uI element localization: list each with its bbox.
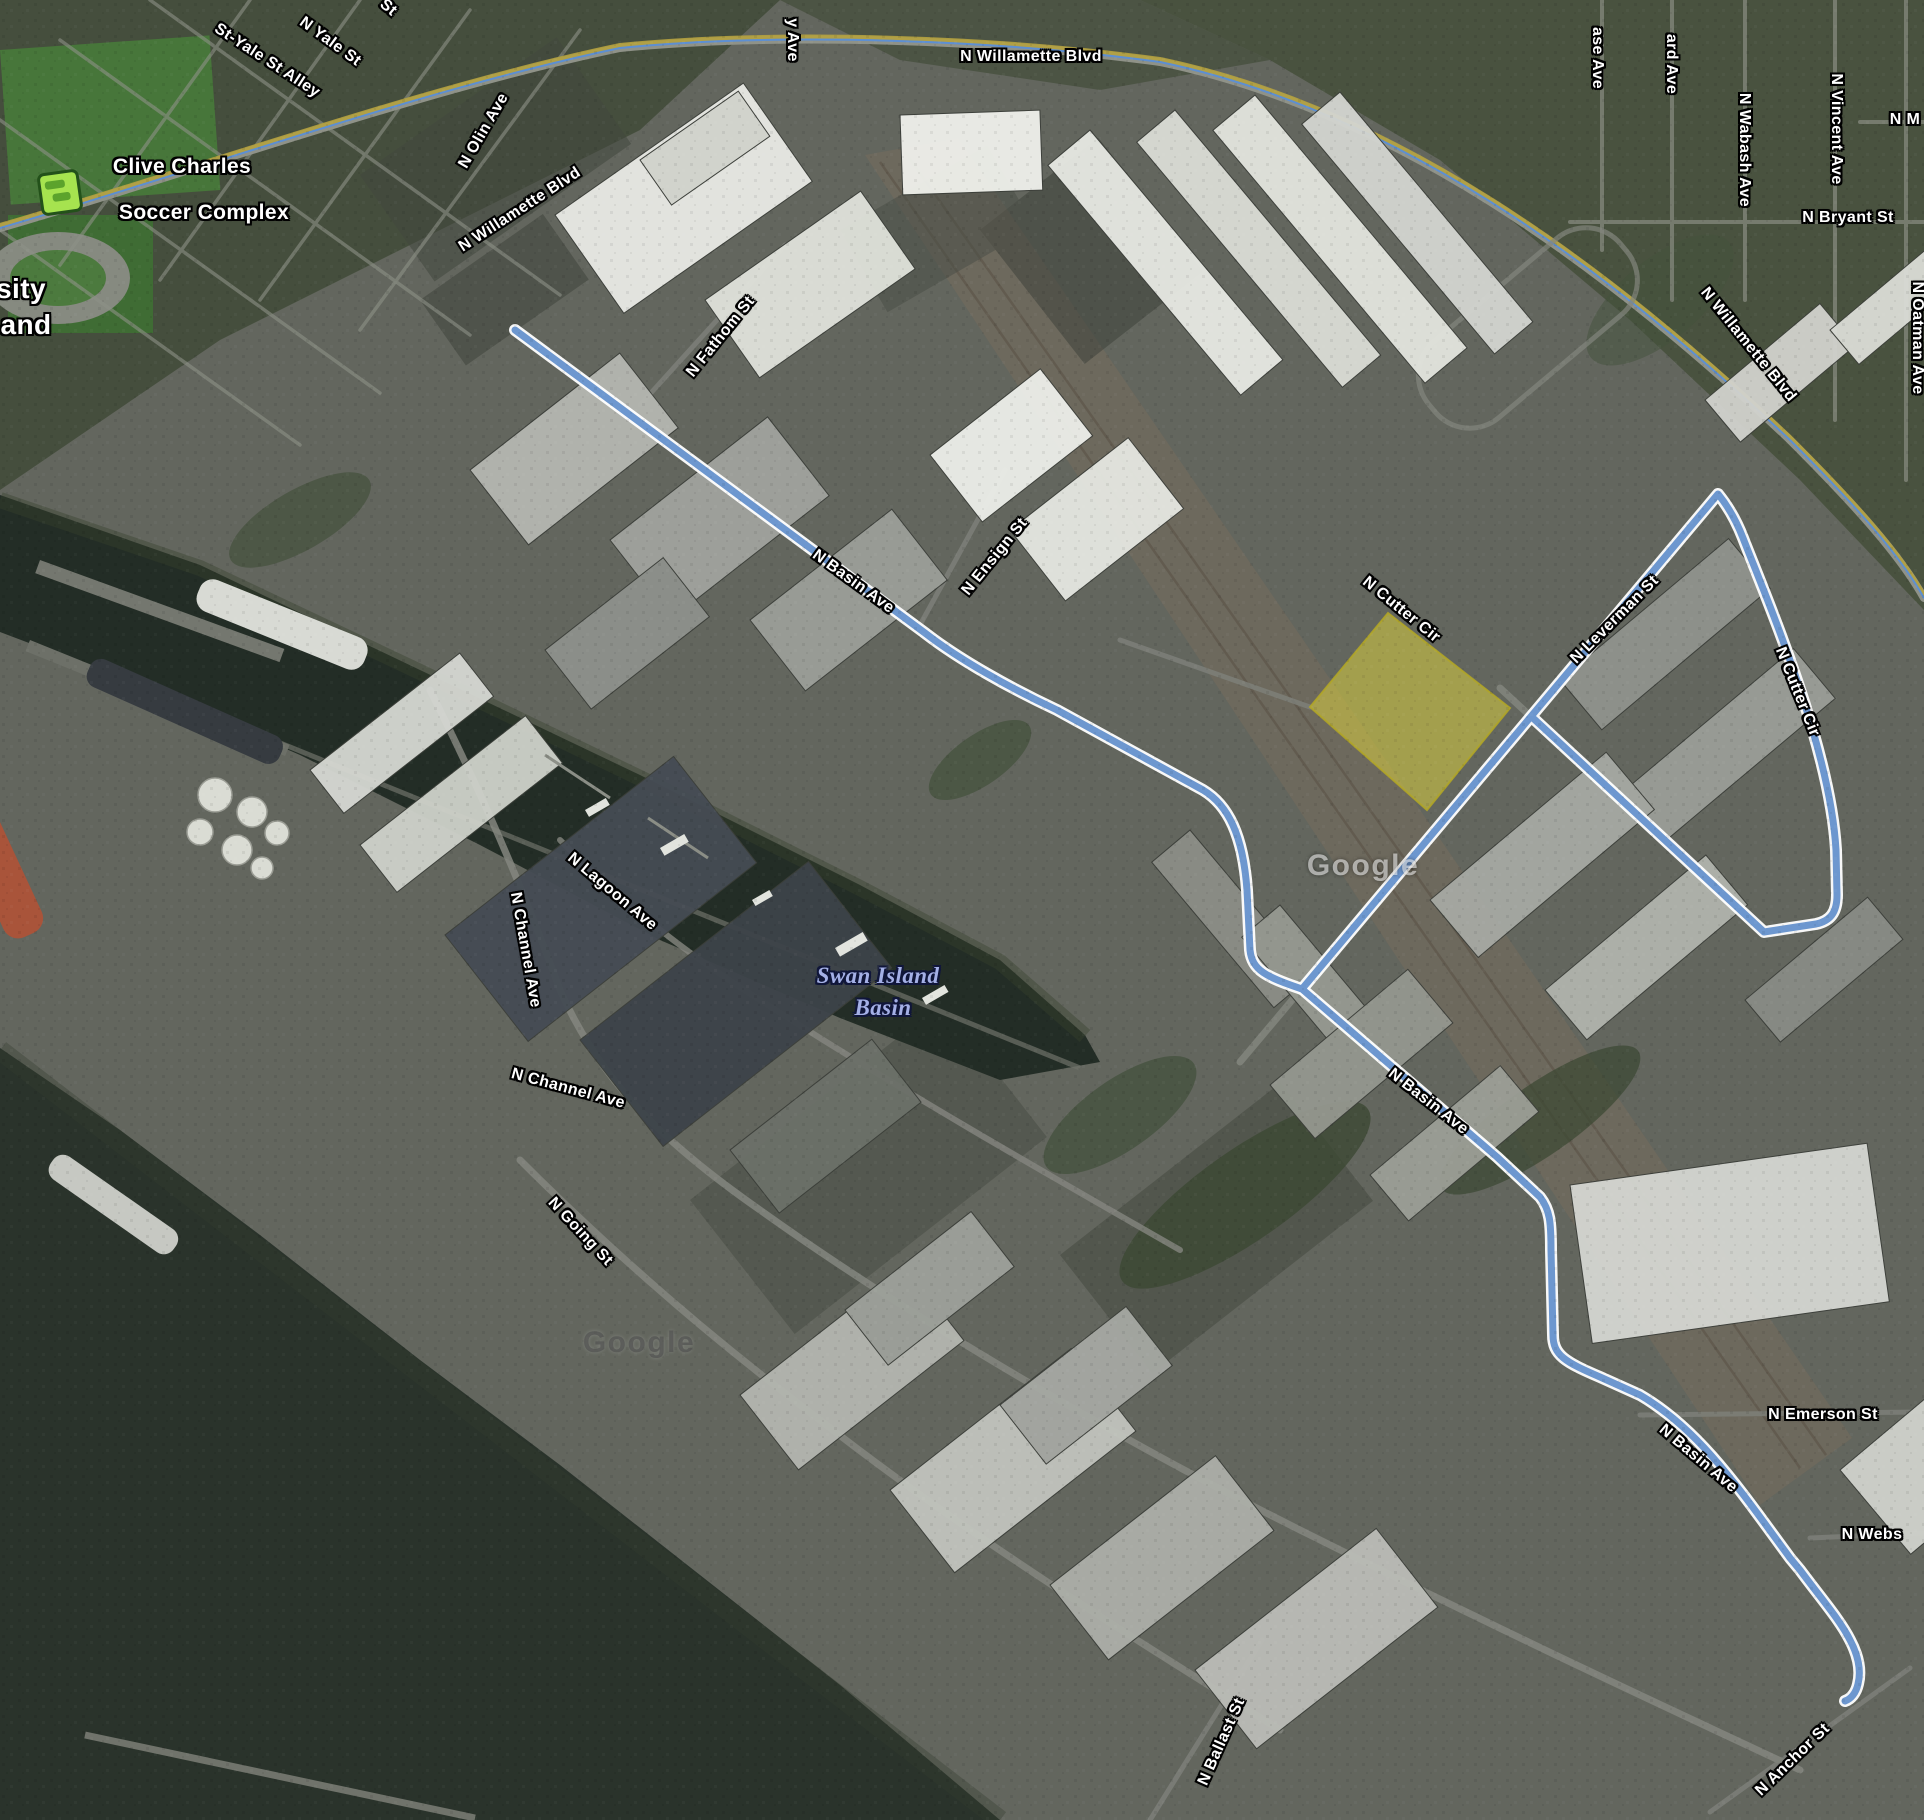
sports-field-icon[interactable] — [36, 168, 84, 216]
satellite-canvas[interactable] — [0, 0, 1924, 1820]
map-canvas[interactable]: Clive Charles Soccer Complex sity and St… — [0, 0, 1924, 1820]
texture-overlay — [0, 0, 1924, 1820]
